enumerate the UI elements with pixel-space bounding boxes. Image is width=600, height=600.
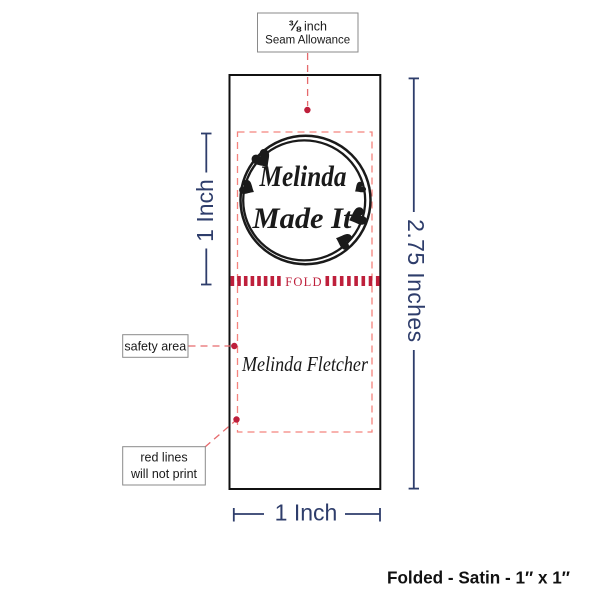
svg-text:1 Inch: 1 Inch	[192, 179, 218, 242]
svg-text:1 Inch: 1 Inch	[275, 500, 338, 526]
svg-text:Melinda: Melinda	[259, 160, 347, 193]
svg-text:Folded - Satin - 1″ x 1″: Folded - Satin - 1″ x 1″	[387, 568, 571, 588]
svg-text:Melinda Fletcher: Melinda Fletcher	[241, 352, 369, 376]
svg-text:red lines: red lines	[140, 451, 187, 465]
svg-text:safety area: safety area	[124, 340, 186, 354]
svg-text:Seam Allowance: Seam Allowance	[265, 35, 350, 47]
svg-text:FOLD: FOLD	[285, 275, 322, 289]
svg-text:2.75 Inches: 2.75 Inches	[403, 219, 429, 342]
svg-text:⅜ inch: ⅜ inch	[288, 19, 327, 35]
svg-text:Made It: Made It	[251, 202, 353, 235]
svg-text:will not print: will not print	[130, 467, 198, 481]
